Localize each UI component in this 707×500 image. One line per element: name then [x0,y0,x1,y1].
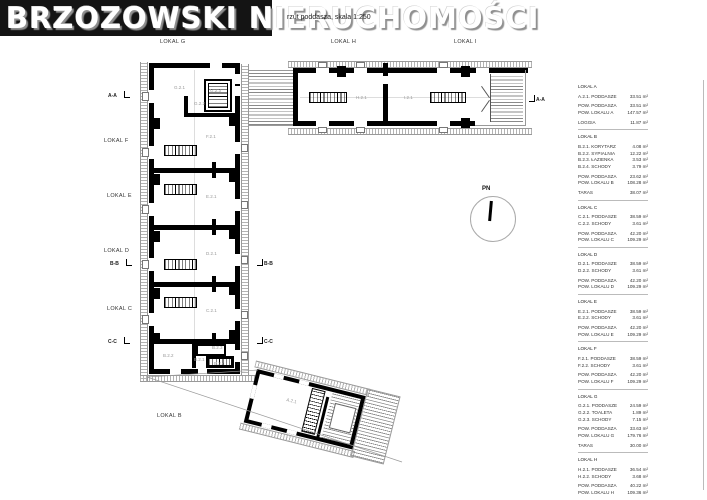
loggia-decking [491,74,523,122]
legend-extras-group: TARAS38.07 m² [578,190,648,197]
legend-row-value: 109.29 m² [627,284,648,291]
floor-plan-sheet: BRZOZOWSKI NIERUCHOMOŚCI rzut poddasza, … [0,0,707,500]
roof-window [142,148,149,157]
legend-row-label: C.2.2. SCHODY [578,221,611,228]
legend-room-row: G.2.2. TOALETA1.89 m² [578,410,648,417]
section-marker-icon [124,91,130,98]
legend-room-row: F.2.2. SCHODY3.61 m² [578,363,648,370]
window-opening [316,68,329,73]
legend-totals-group: POW. PODDASZA42.20 m²POW. LOKALU D109.29… [578,278,648,291]
legend-total-row: POW. LOKALU A147.57 m² [578,110,648,117]
legend-row-value: 1.89 m² [632,410,648,417]
roof-window [142,315,149,324]
legend-room-row: A.2.1. PODDASZE33.51 m² [578,94,648,101]
legend-row-label: POW. PODDASZA [578,483,617,490]
legend-totals-group: POW. PODDASZA40.22 m²POW. LOKALU H109.36… [578,483,648,496]
door-swing [481,100,490,112]
legend-section: LOKAL HH.2.1. PODDASZE36.54 m²H.2.2. SCH… [578,457,648,500]
roof-hatch [140,62,148,382]
legend-room-row: B.2.3. ŁAZIENKA3.53 m² [578,157,648,164]
legend-unit-title: LOKAL F [578,346,648,353]
door-opening [235,74,240,84]
legend-row-label: POW. LOKALU C [578,237,614,244]
label-lokal-e: LOKAL E [107,193,132,199]
roof-window [318,127,327,133]
door-opening [210,63,222,68]
marker-cc-right: C-C [264,339,273,345]
window-opening [235,142,240,154]
legend-row-value: 4.08 m² [632,144,648,151]
legend-row-label: F.2.1. PODDASZE [578,356,616,363]
window-opening [354,121,367,126]
legend-row-value: 30.00 m² [630,443,648,450]
legend-row-value: 23.62 m² [630,174,648,181]
wall-segment [154,174,160,185]
stair-icon [164,184,197,195]
legend-row-label: POW. PODDASZA [578,174,617,181]
stair-icon [164,145,197,156]
window-opening [437,121,450,126]
legend-extra-row: LOGGIA11.87 m² [578,120,648,127]
stair-icon [430,92,466,103]
legend-row-value: 109.29 m² [627,332,648,339]
legend-section: LOKAL BB.2.1. KORYTARZ4.08 m²B.2.2. SYPI… [578,134,648,200]
wall-stub [212,276,216,292]
wall-segment [154,231,160,242]
roof-window [439,62,448,68]
legend-row-label: TARAS [578,190,593,197]
legend-row-value: 42.20 m² [630,325,648,332]
marker-aa-left: A-A [108,93,117,99]
label-lokal-h: LOKAL H [331,39,356,45]
legend-row-label: B.2.1. KORYTARZ [578,144,616,151]
roof-window [356,62,365,68]
legend-row-value: 38.59 m² [630,356,648,363]
chimney [461,118,470,128]
door-opening [383,76,388,84]
legend-room-row: B.2.1. KORYTARZ4.08 m² [578,144,648,151]
legend-row-label: B.2.4. SCHODY [578,164,611,171]
legend-section: LOKAL DD.2.1. PODDASZE38.59 m²D.2.2. SCH… [578,252,648,295]
legend-unit-title: LOKAL D [578,252,648,259]
legend-room-row: D.2.1. PODDASZE38.59 m² [578,261,648,268]
roof-window [241,311,248,319]
legend-row-label: POW. PODDASZA [578,325,617,332]
legend-row-label: G.2.3. SCHODY [578,417,611,424]
legend-row-label: E.2.1. PODDASZE [578,309,617,316]
legend-row-value: 3.61 m² [632,268,648,275]
legend-row-value: 38.59 m² [630,309,648,316]
stair-icon [309,92,347,103]
legend-total-row: POW. PODDASZA33.51 m² [578,103,648,110]
legend-unit-title: LOKAL C [578,205,648,212]
roof-window [241,201,248,209]
legend-row-value: 42.20 m² [630,278,648,285]
legend-room-row: G.2.1. PODDASZE24.59 m² [578,403,648,410]
legend-unit-title: LOKAL A [578,84,648,91]
roof-window [142,260,149,269]
legend-room-row: C.2.2. SCHODY3.61 m² [578,221,648,228]
legend-row-label: POW. PODDASZA [578,426,617,433]
legend-totals-group: POW. PODDASZA42.20 m²POW. LOKALU F109.29… [578,372,648,385]
legend-section: LOKAL EE.2.1. PODDASZE38.59 m²E.2.2. SCH… [578,299,648,342]
loggia-edge [475,125,526,126]
roof-window [318,62,327,68]
legend-row-value: 38.07 m² [630,190,648,197]
legend-row-value: 40.22 m² [630,483,648,490]
legend-row-label: H.2.2. SCHODY [578,474,611,481]
legend-total-row: POW. LOKALU F109.29 m² [578,379,648,386]
legend-row-label: POW. LOKALU F [578,379,613,386]
partition-wall [383,63,388,126]
label-lokal-d: LOKAL D [104,248,129,254]
legend-total-row: POW. PODDASZA42.20 m² [578,231,648,238]
section-marker-icon [257,337,263,344]
legend-row-value: 3.61 m² [632,315,648,322]
legend-row-value: 38.59 m² [630,214,648,221]
legend-room-row: H.2.1. PODDASZE36.54 m² [578,467,648,474]
window-opening [149,258,154,271]
window-opening [149,146,154,159]
chimney [337,66,346,77]
legend-row-value: 109.29 m² [627,237,648,244]
roof-hatch [241,64,249,376]
label-room-a21: A.2.1 [286,397,297,404]
roof-window [241,144,248,152]
legend-totals-group: POW. PODDASZA42.20 m²POW. LOKALU E109.29… [578,325,648,338]
legend-row-label: G.2.1. PODDASZE [578,403,617,410]
legend-row-value: 33.51 m² [630,103,648,110]
legend-room-row: C.2.1. PODDASZE38.59 m² [578,214,648,221]
diagonal-wing: A.2.1 [244,369,366,449]
legend-room-row: G.2.3. SCHODY7.15 m² [578,417,648,424]
legend-totals-group: POW. PODDASZA23.62 m²POW. LOKALU B108.28… [578,174,648,187]
legend-total-row: POW. LOKALU G179.76 m² [578,433,648,440]
wall-segment [154,288,160,299]
partition-wall [154,168,235,173]
window-opening [149,313,154,326]
window-opening [437,68,450,73]
legend-row-value: 12.22 m² [630,151,648,158]
roof-window [241,352,248,360]
legend-total-row: POW. LOKALU B108.28 m² [578,180,648,187]
window-opening [235,199,240,211]
window-opening [198,369,207,374]
legend-row-label: H.2.1. PODDASZE [578,467,617,474]
drawing-title: rzut poddasza, skala 1:250 [287,14,371,21]
window-opening [235,309,240,321]
chimney [461,66,470,77]
legend-row-value: 11.87 m² [630,120,648,127]
legend-row-value: 179.76 m² [627,433,648,440]
label-lokal-b: LOKAL B [157,413,182,419]
window-opening [476,68,489,73]
legend-row-value: 24.59 m² [630,403,648,410]
legend-row-label: POW. PODDASZA [578,231,617,238]
legend-row-label: C.2.1. PODDASZE [578,214,617,221]
legend-totals-group: POW. PODDASZA33.51 m²POW. LOKALU A147.57… [578,103,648,116]
legend-row-label: LOGGIA [578,120,596,127]
legend-total-row: POW. PODDASZA42.20 m² [578,372,648,379]
legend-row-label: POW. PODDASZA [578,372,617,379]
wall-stub [212,162,216,178]
sheet-edge-line [703,80,704,490]
legend-row-label: POW. PODDASZA [578,278,617,285]
label-lokal-c: LOKAL C [107,306,132,312]
legend-room-row: H.2.2. SCHODY3.68 m² [578,474,648,481]
roof-window [142,205,149,214]
legend-row-label: POW. LOKALU B [578,180,614,187]
wall-stub [212,219,216,235]
legend-row-value: 3.53 m² [632,157,648,164]
section-marker-icon [257,259,263,266]
section-marker-icon [126,259,132,266]
legend-row-label: POW. LOKALU A [578,110,614,117]
wall-segment [154,118,160,129]
legend-room-row: E.2.1. PODDASZE38.59 m² [578,309,648,316]
legend-total-row: POW. PODDASZA42.20 m² [578,325,648,332]
window-opening [149,90,154,103]
marker-bb-right: B-B [264,261,273,267]
legend-row-label: E.2.2. SCHODY [578,315,611,322]
partition-wall [184,113,235,117]
legend-row-value: 33.63 m² [630,426,648,433]
legend-row-value: 108.28 m² [627,180,648,187]
roof-window [439,127,448,133]
legend-totals-group: POW. PODDASZA33.63 m²POW. LOKALU G179.76… [578,426,648,439]
legend-room-row: E.2.2. SCHODY3.61 m² [578,315,648,322]
section-marker-icon [529,95,535,102]
legend-row-value: 3.68 m² [632,474,648,481]
legend-total-row: POW. LOKALU E109.29 m² [578,332,648,339]
legend-extra-row: TARAS38.07 m² [578,190,648,197]
legend-section: LOKAL GG.2.1. PODDASZE24.59 m²G.2.2. TOA… [578,394,648,454]
legend-row-label: D.2.1. PODDASZE [578,261,617,268]
wing-label-layer: A.2.1 [244,369,366,449]
marker-aa-right: A-A [536,97,545,103]
legend-total-row: POW. PODDASZA23.62 m² [578,174,648,181]
legend-row-value: 109.29 m² [627,379,648,386]
legend-extras-group: LOGGIA11.87 m² [578,120,648,127]
marker-cc-left: C-C [108,339,117,345]
legend-unit-title: LOKAL B [578,134,648,141]
window-opening [235,86,240,96]
legend-unit-title: LOKAL E [578,299,648,306]
legend-total-row: POW. LOKALU D109.29 m² [578,284,648,291]
legend-room-row: B.2.2. SYPIALNIA12.22 m² [578,151,648,158]
label-lokal-g: LOKAL G [160,39,185,45]
legend-row-value: 33.51 m² [630,94,648,101]
legend-row-label: B.2.3. ŁAZIENKA [578,157,614,164]
legend-row-value: 147.57 m² [627,110,648,117]
legend-row-value: 42.20 m² [630,231,648,238]
legend-row-label: B.2.2. SYPIALNIA [578,151,615,158]
legend-panel: LOKAL AA.2.1. PODDASZE33.51 m²POW. PODDA… [578,84,648,500]
legend-row-value: 3.79 m² [632,164,648,171]
legend-row-label: F.2.2. SCHODY [578,363,610,370]
legend-extra-row: TARAS30.00 m² [578,443,648,450]
legend-section: LOKAL AA.2.1. PODDASZE33.51 m²POW. PODDA… [578,84,648,130]
partition-wall [154,225,235,230]
legend-row-value: 7.15 m² [632,417,648,424]
legend-row-label: POW. LOKALU D [578,284,614,291]
legend-section: LOKAL CC.2.1. PODDASZE38.59 m²C.2.2. SCH… [578,205,648,248]
legend-row-value: 109.36 m² [627,490,648,497]
legend-row-label: POW. LOKALU H [578,490,614,497]
bathroom-walls [196,344,226,356]
legend-row-value: 36.54 m² [630,467,648,474]
north-label: PN [482,186,490,192]
legend-total-row: POW. PODDASZA40.22 m² [578,483,648,490]
watermark-text: BRZOZOWSKI NIERUCHOMOŚCI [6,1,539,35]
label-lokal-f: LOKAL F [104,138,129,144]
legend-extras-group: TARAS30.00 m² [578,443,648,450]
legend-totals-group: POW. PODDASZA42.20 m²POW. LOKALU C109.29… [578,231,648,244]
stair-icon [164,259,197,270]
legend-total-row: POW. LOKALU C109.29 m² [578,237,648,244]
north-arrow-circle [470,196,516,242]
window-opening [354,68,367,73]
legend-total-row: POW. LOKALU H109.36 m² [578,490,648,497]
roof-window [356,127,365,133]
roof-window [241,256,248,264]
legend-unit-title: LOKAL H [578,457,648,464]
partition-wall [154,282,235,287]
legend-row-value: 3.61 m² [632,363,648,370]
window-opening [316,121,329,126]
legend-room-row: D.2.2. SCHODY3.61 m² [578,268,648,275]
legend-row-label: A.2.1. PODDASZE [578,94,617,101]
legend-row-value: 38.59 m² [630,261,648,268]
wall-segment [293,68,298,126]
legend-row-value: 3.61 m² [632,221,648,228]
window-opening [170,369,181,374]
legend-row-label: POW. LOKALU G [578,433,614,440]
legend-row-label: TARAS [578,443,593,450]
legend-row-label: G.2.2. TOALETA [578,410,612,417]
legend-row-label: POW. LOKALU E [578,332,614,339]
legend-row-label: POW. PODDASZA [578,103,617,110]
legend-row-value: 42.20 m² [630,372,648,379]
window-opening [235,350,240,362]
legend-row-label: D.2.2. SCHODY [578,268,611,275]
legend-room-row: F.2.1. PODDASZE38.59 m² [578,356,648,363]
roof-hatch [140,375,256,382]
stair-icon [208,83,228,108]
roof-window [142,92,149,101]
label-lokal-i: LOKAL I [454,39,477,45]
roof-terrace-hatch [249,70,293,126]
marker-bb-left: B-B [110,261,119,267]
legend-total-row: POW. PODDASZA42.20 m² [578,278,648,285]
legend-unit-title: LOKAL G [578,394,648,401]
window-opening [149,203,154,216]
stair-icon [164,297,197,308]
legend-room-row: B.2.4. SCHODY3.79 m² [578,164,648,171]
legend-total-row: POW. PODDASZA33.63 m² [578,426,648,433]
window-opening [235,254,240,266]
loggia-edge [525,70,526,126]
section-marker-icon [124,337,130,344]
stair-icon [208,358,232,366]
legend-section: LOKAL FF.2.1. PODDASZE38.59 m²F.2.2. SCH… [578,346,648,389]
